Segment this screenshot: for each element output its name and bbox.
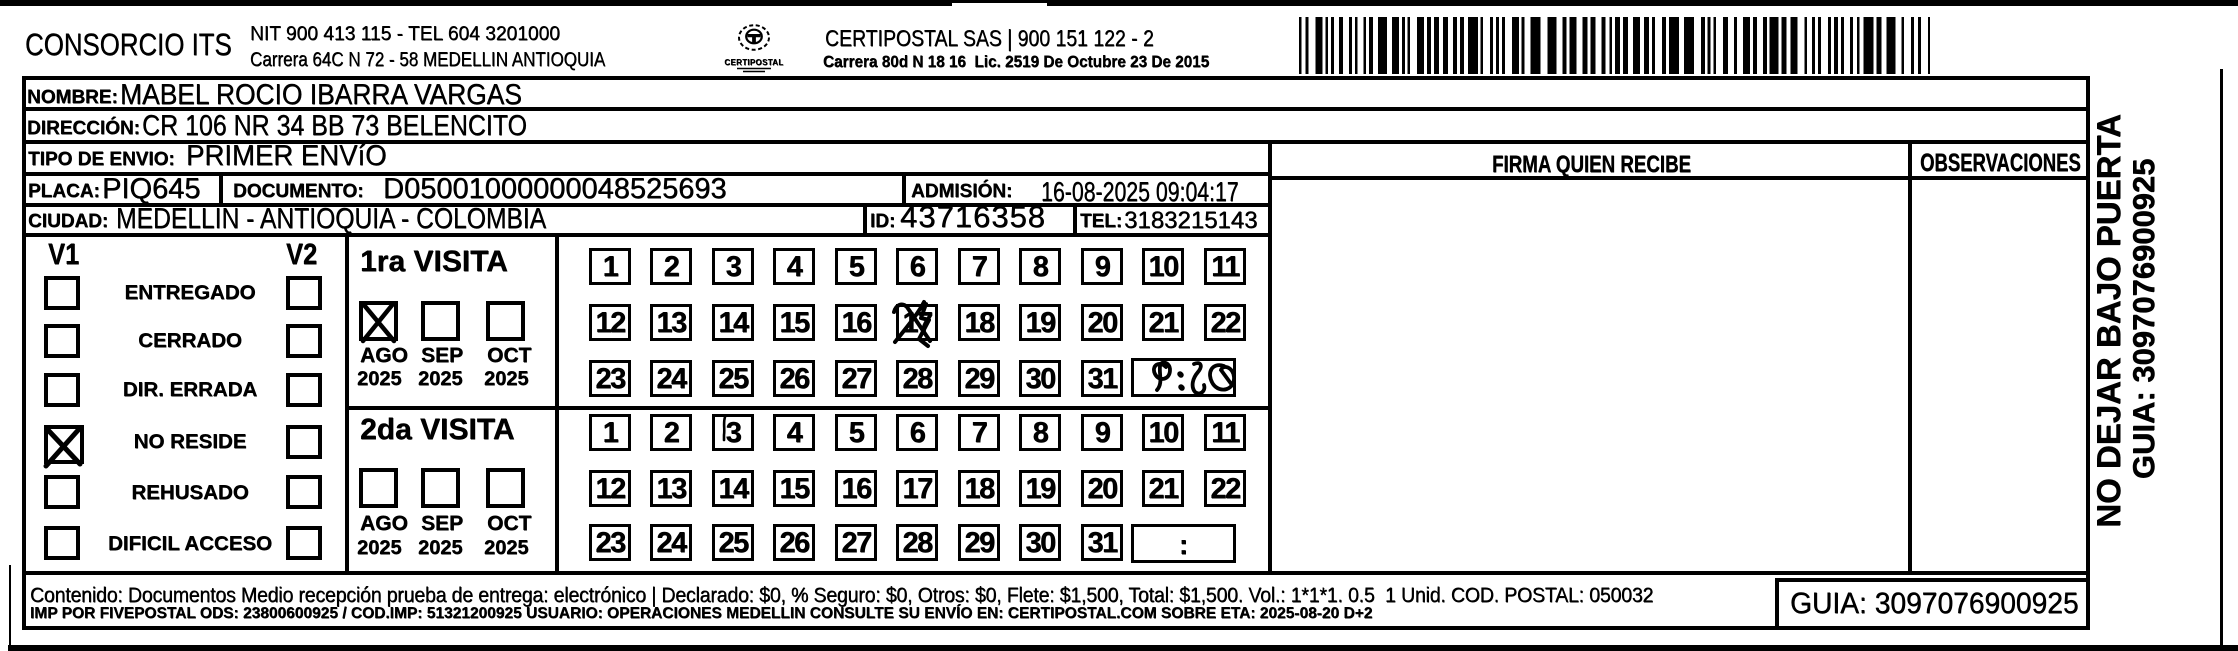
svg-text:CERTIPOSTAL: CERTIPOSTAL xyxy=(724,58,783,67)
